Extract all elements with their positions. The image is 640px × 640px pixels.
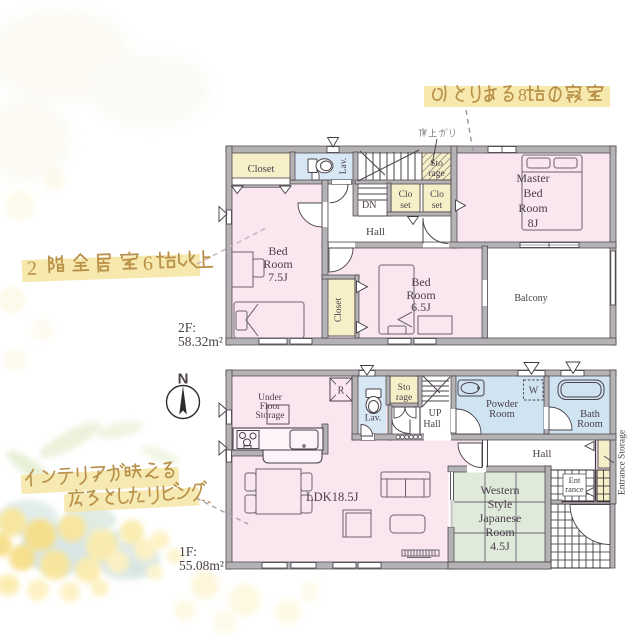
svg-text:Room: Room xyxy=(263,257,293,271)
svg-text:Clo: Clo xyxy=(430,190,444,200)
svg-text:Room: Room xyxy=(577,419,603,430)
svg-text:Closet: Closet xyxy=(334,298,344,323)
svg-text:Entrance Storage: Entrance Storage xyxy=(618,430,628,495)
svg-text:rage: rage xyxy=(428,169,444,179)
svg-text:Bed: Bed xyxy=(268,244,287,258)
svg-text:UP: UP xyxy=(429,408,442,419)
svg-text:W: W xyxy=(529,386,539,397)
svg-text:N: N xyxy=(178,371,189,388)
svg-text:Hall: Hall xyxy=(423,419,440,430)
svg-text:set: set xyxy=(432,201,443,211)
svg-text:2: 2 xyxy=(27,258,38,280)
svg-text:Balcony: Balcony xyxy=(514,293,547,304)
svg-text:Room: Room xyxy=(489,409,515,420)
svg-text:Storage: Storage xyxy=(255,411,284,421)
svg-text:Closet: Closet xyxy=(248,164,275,175)
svg-text:7.5J: 7.5J xyxy=(268,270,288,284)
svg-text:Hall: Hall xyxy=(533,448,552,460)
svg-text:6: 6 xyxy=(142,253,153,275)
svg-text:58.32m²: 58.32m² xyxy=(178,334,223,349)
svg-text:set: set xyxy=(400,201,411,211)
svg-text:rage: rage xyxy=(396,393,412,403)
svg-text:Lav.: Lav. xyxy=(339,158,349,175)
svg-text:Lav.: Lav. xyxy=(365,414,382,424)
svg-text:6.5J: 6.5J xyxy=(411,300,431,314)
svg-text:LDK18.5J: LDK18.5J xyxy=(306,490,359,504)
svg-text:Sto: Sto xyxy=(398,383,411,393)
svg-text:Room: Room xyxy=(518,201,548,215)
svg-text:rance: rance xyxy=(565,484,584,494)
svg-text:8: 8 xyxy=(518,85,527,105)
svg-text:Clo: Clo xyxy=(399,190,413,200)
svg-text:Room: Room xyxy=(485,525,515,539)
svg-text:1F:: 1F: xyxy=(179,544,197,559)
svg-text:DN: DN xyxy=(362,200,376,211)
svg-text:55.08m²: 55.08m² xyxy=(179,558,224,573)
svg-text:Bed: Bed xyxy=(523,186,542,200)
svg-text:Japanese: Japanese xyxy=(479,511,522,525)
svg-text:8J: 8J xyxy=(528,216,539,230)
svg-text:2F:: 2F: xyxy=(178,320,196,335)
svg-text:Bed: Bed xyxy=(411,275,430,289)
svg-text:R: R xyxy=(338,386,345,397)
svg-text:Master: Master xyxy=(516,171,549,185)
svg-text:Western: Western xyxy=(480,483,519,497)
svg-text:4.5J: 4.5J xyxy=(490,539,510,553)
svg-text:Style: Style xyxy=(488,497,513,511)
svg-text:Hall: Hall xyxy=(366,226,385,238)
